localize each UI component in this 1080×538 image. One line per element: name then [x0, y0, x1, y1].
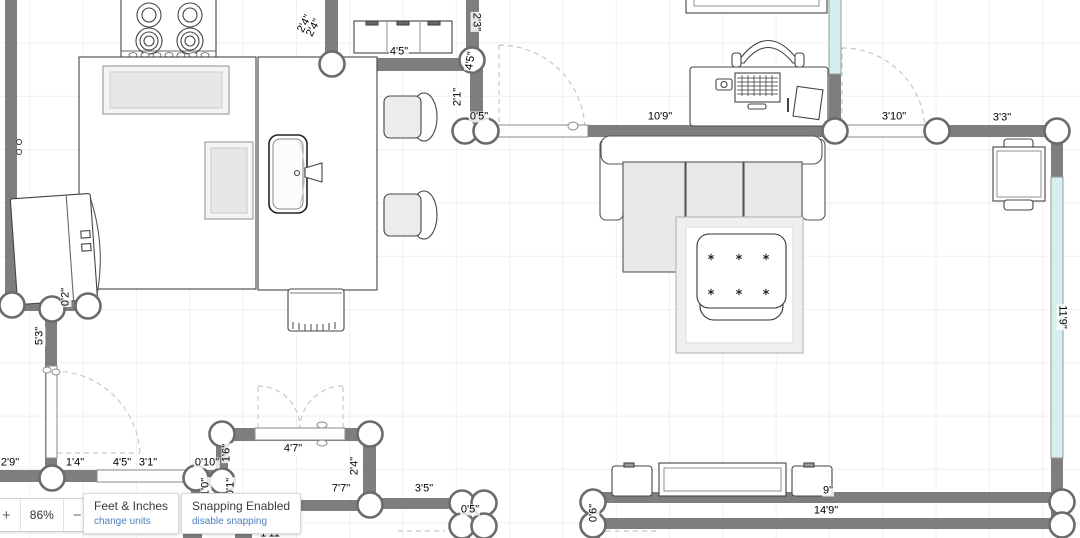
furniture-island[interactable]: [258, 57, 377, 290]
floorplan-drawing: [0, 0, 1080, 538]
window: [829, 0, 841, 74]
door: [97, 470, 188, 482]
door: [255, 428, 345, 440]
window: [1051, 177, 1063, 458]
furniture-stove[interactable]: [121, 0, 216, 58]
furniture-small-table[interactable]: [993, 139, 1045, 210]
furniture-stool[interactable]: [384, 93, 437, 141]
snapping-card: Snapping Enabled disable snapping: [181, 493, 301, 534]
furniture-media-console[interactable]: [612, 463, 832, 496]
wall-fitting: [16, 149, 21, 154]
furniture-ottoman[interactable]: [697, 234, 786, 320]
change-units-link[interactable]: change units: [94, 516, 168, 527]
zoom-in-button[interactable]: +: [0, 499, 20, 531]
door: [841, 125, 926, 137]
windows-layer[interactable]: [829, 0, 1063, 458]
snapping-title: Snapping Enabled: [192, 499, 290, 513]
door: [46, 366, 57, 458]
floorplan-canvas[interactable]: 2'4"2'4"4'5"2'3"4'5"2'1"0'5"10'9"3'10"3'…: [0, 0, 1080, 538]
units-card: Feet & Inches change units: [83, 493, 179, 534]
furniture-cabinet[interactable]: [288, 289, 344, 331]
furniture-stool[interactable]: [384, 191, 437, 239]
furniture-desk[interactable]: [690, 41, 828, 127]
furniture-table-top[interactable]: [686, 0, 827, 13]
units-title: Feet & Inches: [94, 499, 168, 513]
wall-fitting: [16, 139, 21, 144]
furniture-sideboard[interactable]: [354, 21, 452, 53]
zoom-level-value: 86%: [21, 499, 63, 531]
furniture-counter[interactable]: [79, 57, 256, 289]
zoom-control[interactable]: + 86% −: [0, 498, 92, 532]
disable-snapping-link[interactable]: disable snapping: [192, 516, 290, 527]
furniture-fridge[interactable]: [10, 193, 103, 305]
